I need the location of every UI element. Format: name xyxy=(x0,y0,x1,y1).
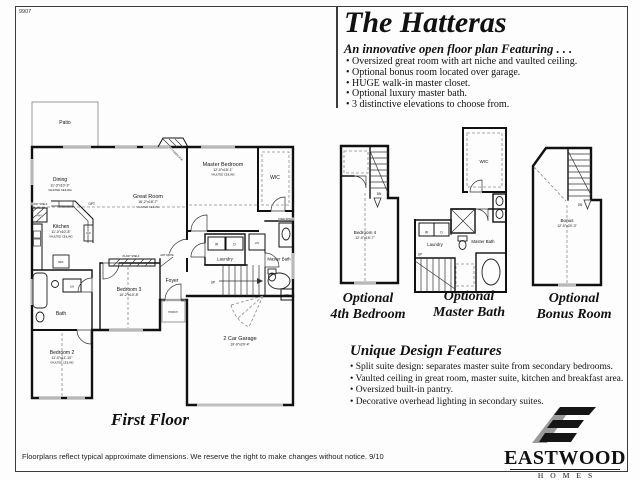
master-bedroom-note: VAULTED CEILING xyxy=(211,173,235,177)
bedroom4-stairs xyxy=(370,151,388,207)
laundry-appliances xyxy=(208,237,243,250)
toilet xyxy=(36,312,44,322)
bedroom4-dn-label: DN xyxy=(377,192,382,196)
windows xyxy=(32,147,293,405)
design-features: Unique Design Features • Split suite des… xyxy=(350,343,623,408)
dryer-label: D xyxy=(233,243,236,247)
bath-label: Bath xyxy=(56,311,67,317)
optional-fireplace xyxy=(158,138,188,147)
caption-line: Optional xyxy=(512,291,636,307)
first-floor-plan: Patio Dining 11'-3"x10'-3" VAULTED CEILI… xyxy=(25,93,315,428)
feature-item: • 3 distinctive elevations to choose fro… xyxy=(346,100,577,111)
design-feature-item: • Oversized built-in pantry. xyxy=(350,385,623,397)
knee-space-label: KNEE SPACE xyxy=(278,218,294,221)
first-floor-caption: First Floor xyxy=(80,410,220,430)
garage-dims: 19'-0"x20'-4" xyxy=(230,343,250,347)
great-room-dims: 16'-2"x18'-7" xyxy=(138,200,158,204)
optional-bonus-room-plan: Bonus 12'-0"x20'-3" DN xyxy=(528,143,620,293)
exterior-walls xyxy=(32,147,293,405)
kitchen-note: VAULTED CEILING xyxy=(49,235,73,239)
master-bedroom-dims: 12'-0"x15'-1" xyxy=(213,168,233,172)
bath-fixtures xyxy=(33,273,59,322)
title-divider-rule xyxy=(336,7,338,108)
mbath-toilet xyxy=(458,236,467,250)
ref-label: REF xyxy=(59,261,64,264)
bedroom3-dims: 10'-2"x10'-8" xyxy=(119,293,139,297)
pantry-label: PAN xyxy=(37,215,42,218)
stairs-up xyxy=(219,265,263,296)
wic-label: WIC xyxy=(270,175,280,181)
porch-label: PORCH xyxy=(168,311,177,314)
eastwood-roof-icon xyxy=(532,406,598,443)
laundry-label: Laundry xyxy=(217,257,233,262)
mbath-room-label: Master Bath xyxy=(471,239,495,244)
mbath-stairs xyxy=(415,258,455,292)
bonus-stairs xyxy=(568,151,591,209)
dining-dims: 11'-3"x10'-3" xyxy=(50,184,70,188)
mbath-w-label: W xyxy=(425,231,428,235)
brochure-page: 9907 The Hatteras An innovative open flo… xyxy=(0,0,640,480)
kitchen-dims: 11'-0"x10'-8" xyxy=(51,230,71,234)
feature-item: • Optional bonus room located over garag… xyxy=(346,68,577,79)
mbath-door-swing xyxy=(476,209,488,221)
design-features-heading: Unique Design Features xyxy=(350,343,623,360)
mbath-d-label: D xyxy=(440,231,443,235)
hall-linen-label: LIN xyxy=(255,242,259,245)
logo-homes: HOMES xyxy=(510,469,620,480)
plant-shelf2-label: PLANT SHELF xyxy=(123,255,140,258)
bedroom4-label: Bedroom 4 xyxy=(354,230,377,235)
vanity-sink xyxy=(282,228,290,240)
bedroom2-note: VAULTED CEILING xyxy=(50,361,74,365)
footer-disclaimer: Floorplans reflect typical approximate d… xyxy=(22,452,384,461)
page-subtitle: An innovative open floor plan Featuring … xyxy=(344,42,572,57)
win-label: WIN xyxy=(285,294,290,297)
mbath-laundry-label: Laundry xyxy=(427,242,443,247)
mbath-laundry xyxy=(419,223,449,236)
design-feature-item: • Split suite design: separates master s… xyxy=(350,362,623,374)
bonus-label: Bonus xyxy=(560,218,574,223)
bonus-dn-label: DN xyxy=(578,203,583,207)
mbath-tub xyxy=(476,253,506,292)
master-bath-label: Master Bath xyxy=(267,257,291,262)
plan-number: 9907 xyxy=(19,9,31,15)
mbath-wic-label: WIC xyxy=(480,159,490,164)
optional-bonus-room-caption: Optional Bonus Room xyxy=(512,291,636,323)
art-niche-label: ART NICHE xyxy=(160,254,174,257)
optional-master-bath-plan: WIC Laundry Master Bath W D UP xyxy=(410,124,528,296)
door-gaps xyxy=(77,211,285,330)
mbath-toilet-compartment xyxy=(493,194,506,222)
mbath-wic-door-swing xyxy=(470,180,482,192)
foyer-label: Foyer xyxy=(166,278,179,284)
mbath-up-label: UP xyxy=(418,253,422,257)
bedroom4-inner-walls xyxy=(341,146,370,198)
dining-note: VAULTED CEILING xyxy=(48,188,72,192)
mbath-platform-dashed xyxy=(456,264,474,286)
optional-4th-bedroom-plan: Bedroom 4 12'-0"x15'-7" DN xyxy=(328,143,408,293)
dining-label: Dining xyxy=(53,177,67,183)
mbath-shower xyxy=(451,209,475,233)
stair-winder xyxy=(231,296,263,327)
caption-line: Bonus Room xyxy=(512,307,636,323)
bedroom4-dims: 12'-0"x15'-7" xyxy=(355,236,375,240)
patio-label: Patio xyxy=(59,120,71,126)
page-title: The Hatteras xyxy=(344,6,507,40)
dw-label: DW xyxy=(86,232,91,235)
bathtub xyxy=(33,273,47,308)
plant-shelf-label: PLANT SHELF xyxy=(31,203,48,206)
bedroom2-dims: 11'-0"x11'-10" xyxy=(51,356,73,360)
great-room-note: VAULTED CEILING xyxy=(136,205,160,209)
bath-linen-label: LIN xyxy=(70,286,74,289)
washer-label: W xyxy=(215,243,218,247)
logo-name: EASTWOOD xyxy=(502,448,628,468)
feature-list: • Oversized great room with art niche an… xyxy=(346,57,577,111)
opt-label: OPT. xyxy=(88,202,95,206)
stairs-up-label: UP xyxy=(211,281,215,285)
bedroom4-door-swing xyxy=(354,176,366,188)
eastwood-homes-logo: EASTWOOD HOMES xyxy=(502,406,628,480)
bedroom4-closet-dashed xyxy=(344,151,368,173)
bonus-dims: 12'-0"x20'-3" xyxy=(557,224,577,228)
garage-label: 2 Car Garage xyxy=(223,336,256,342)
design-feature-item: • Vaulted ceiling in great room, master … xyxy=(350,374,623,386)
bath-sink xyxy=(52,281,59,288)
